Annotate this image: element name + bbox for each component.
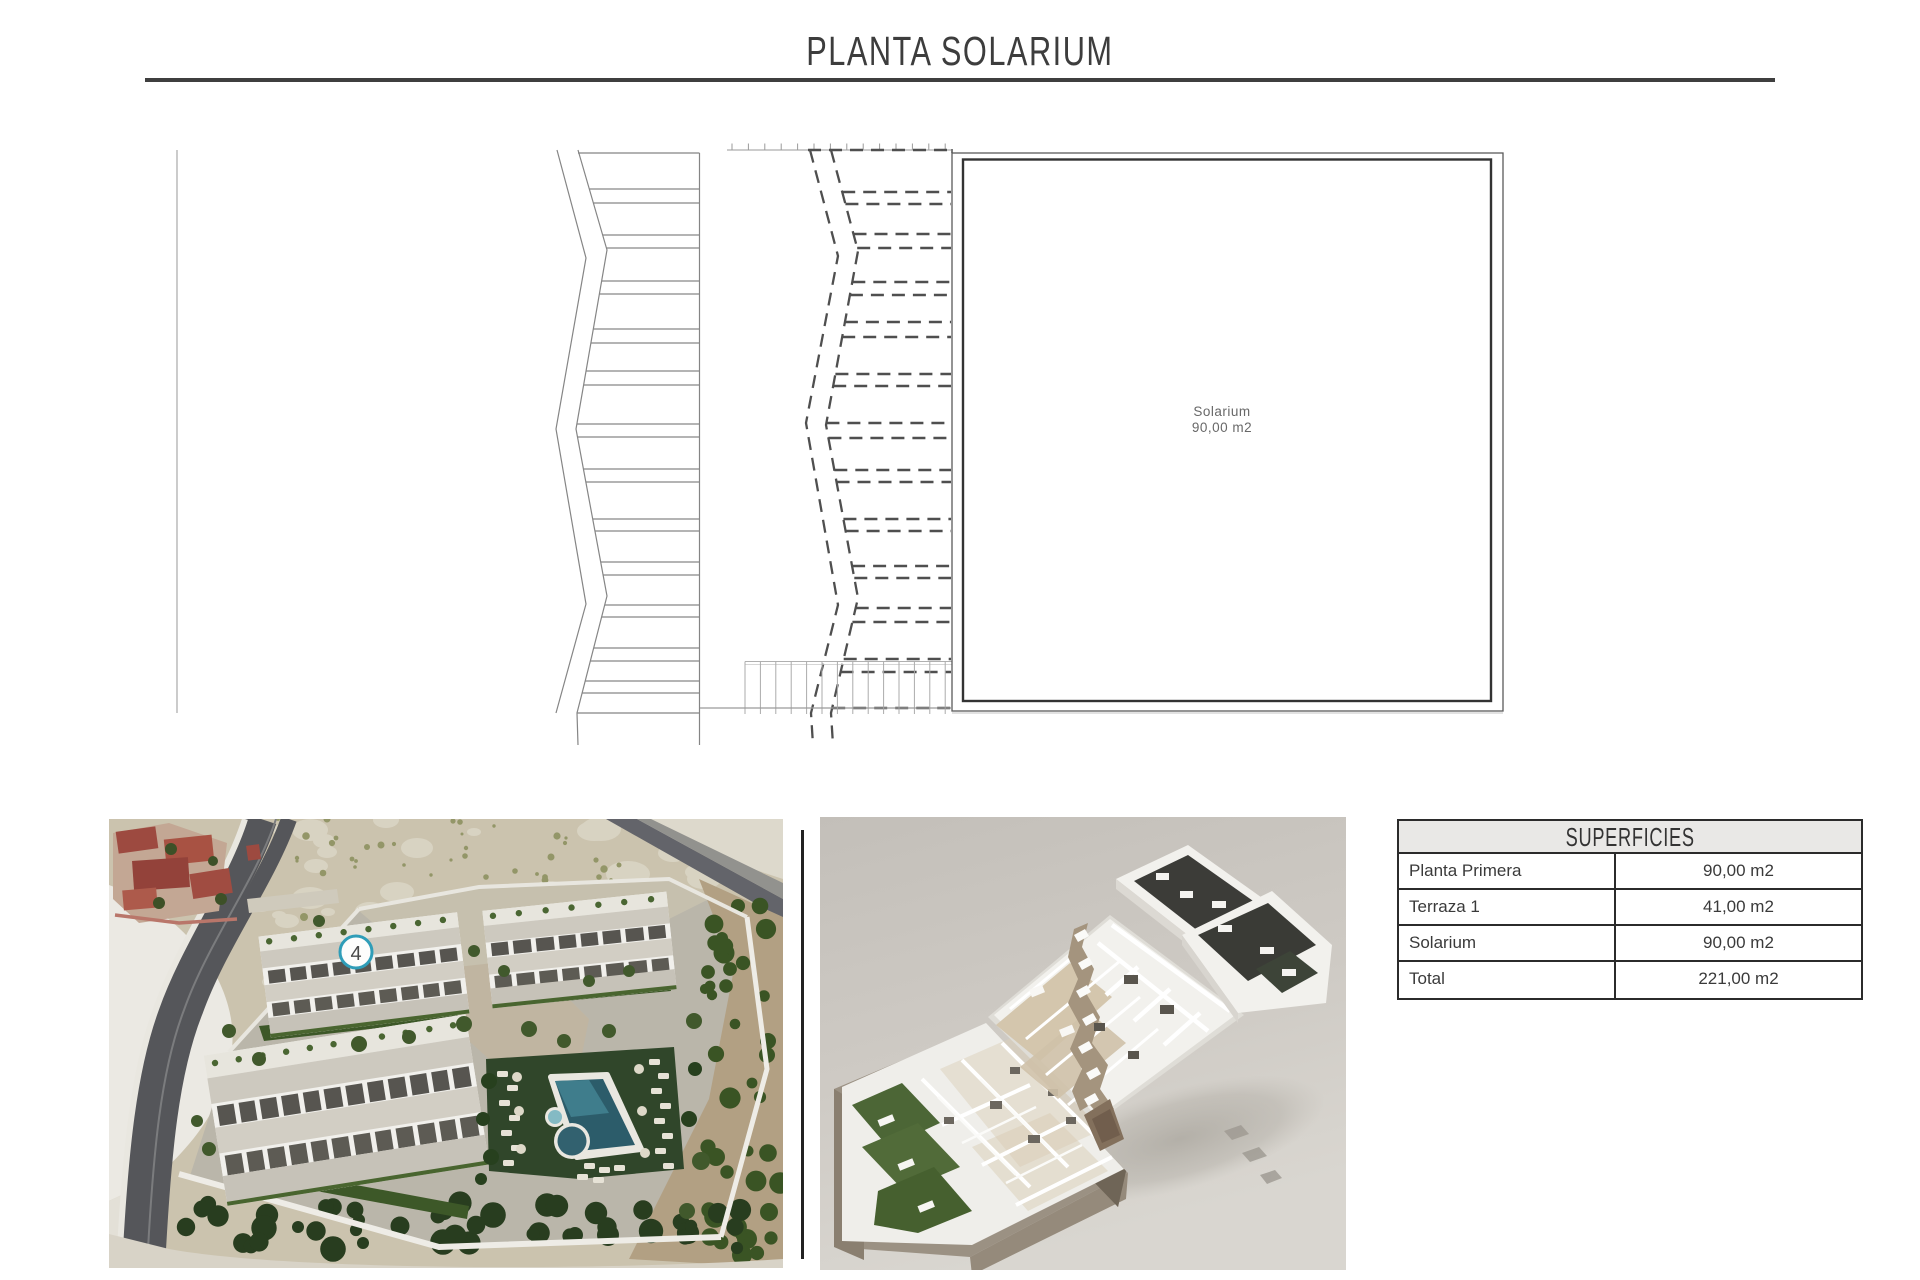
svg-text:Solarium: Solarium: [1193, 404, 1250, 419]
svg-text:90,00 m2: 90,00 m2: [1192, 420, 1252, 435]
svg-text:4: 4: [350, 943, 361, 965]
